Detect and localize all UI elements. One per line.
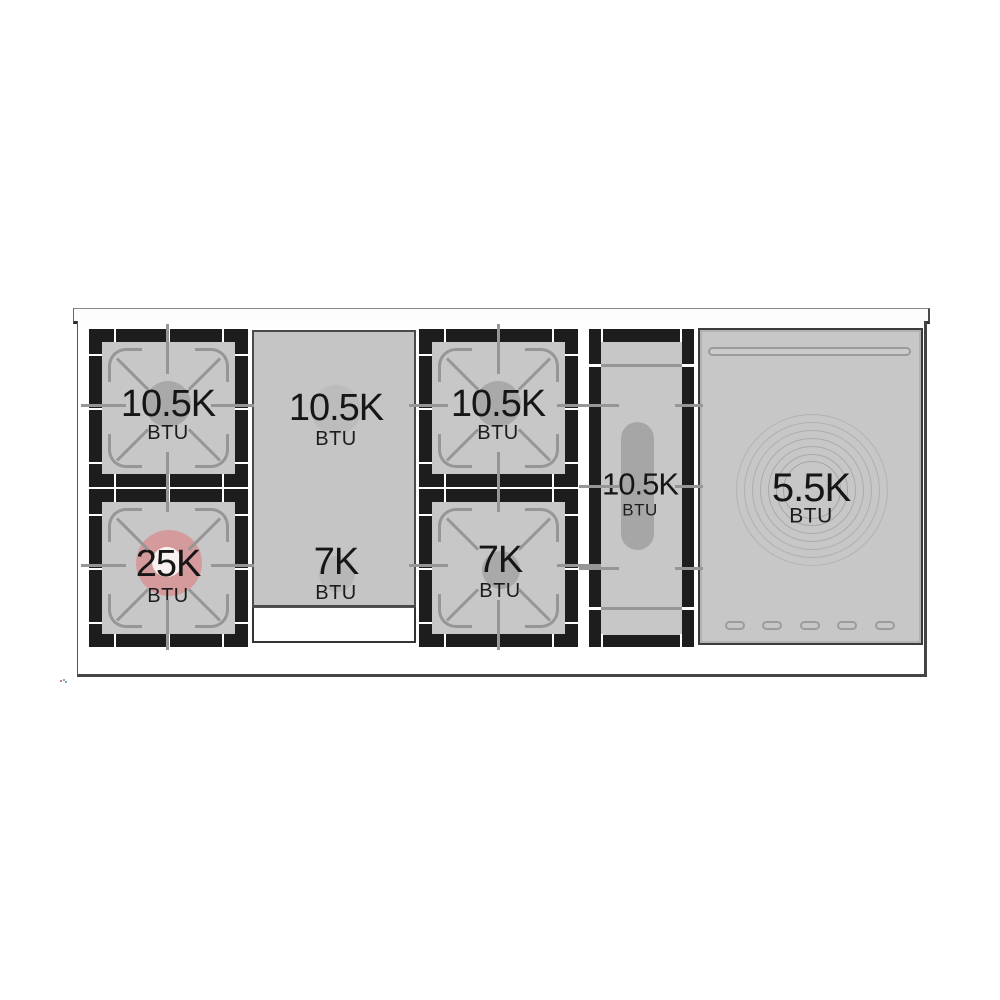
grate-gap xyxy=(419,622,432,624)
grate-gap xyxy=(235,622,248,624)
vent-slot-icon xyxy=(837,621,857,630)
grate-tick xyxy=(497,600,500,650)
burner-value-label: 25K xyxy=(136,545,201,583)
grate-tick xyxy=(409,564,448,567)
grate-tick xyxy=(497,324,500,374)
grate-tick xyxy=(409,404,448,407)
grate-gap xyxy=(565,622,578,624)
grate-gap xyxy=(114,634,116,647)
grate-gap xyxy=(222,634,224,647)
burner-value-label: 10.5K xyxy=(451,385,545,423)
grate-gap xyxy=(89,462,102,464)
burner-unit-label: BTU xyxy=(479,581,521,601)
grate-tick xyxy=(675,404,703,407)
burner-unit-label: BTU xyxy=(315,583,357,603)
grate-gap xyxy=(419,514,432,516)
grate-gap xyxy=(89,514,102,516)
grate-gap xyxy=(235,514,248,516)
grate-gap xyxy=(114,329,116,342)
grate-tick xyxy=(166,324,169,374)
french-top-handle-icon xyxy=(708,347,911,356)
grate-gap xyxy=(444,329,446,342)
grate-gap xyxy=(235,354,248,356)
grate-tick xyxy=(166,452,169,512)
burner-unit-label: BTU xyxy=(622,502,658,519)
grate-gap xyxy=(565,568,578,570)
grate-bar xyxy=(601,364,682,367)
rangetop-body: 10.5K BTU 25K BTU 10.5K BTU 7K BTU xyxy=(77,321,927,677)
grate-gap xyxy=(89,408,102,410)
burner-value-label: 7K xyxy=(314,543,358,581)
grate-gap xyxy=(552,329,554,342)
burner-value-label: 10.5K xyxy=(602,469,678,500)
vent-slot-icon xyxy=(762,621,782,630)
vent-slot-icon xyxy=(725,621,745,630)
grate-gap xyxy=(419,354,432,356)
grate-tick xyxy=(497,452,500,512)
grate-tick xyxy=(675,485,703,488)
grate-tick xyxy=(81,404,126,407)
grate-gap xyxy=(419,408,432,410)
french-top-section: 5.5K BTU xyxy=(698,328,923,645)
grate-gap xyxy=(222,474,224,487)
vent-slot-icon xyxy=(800,621,820,630)
grate-gap xyxy=(565,462,578,464)
grate-gap xyxy=(89,568,102,570)
grate-gap xyxy=(89,354,102,356)
grate-tick xyxy=(579,567,619,570)
grate-gap xyxy=(565,354,578,356)
grate-tick xyxy=(579,485,619,488)
vent-slot-icon xyxy=(875,621,895,630)
burner-unit-label: BTU xyxy=(315,429,357,449)
grate-tick xyxy=(211,564,254,567)
watermark-dot xyxy=(60,679,68,683)
burner-unit-label: BTU xyxy=(477,423,519,443)
grate-gap xyxy=(552,474,554,487)
grate-tick xyxy=(81,564,126,567)
grate-tick xyxy=(675,567,703,570)
grate-gap xyxy=(114,474,116,487)
grate-gap xyxy=(114,489,116,502)
griddle-section: 10.5K BTU 7K BTU xyxy=(252,330,416,607)
grate-gap xyxy=(552,489,554,502)
griddle-grease-tray xyxy=(252,607,416,643)
burner-value-label: 10.5K xyxy=(289,389,383,427)
burner-value-label: 7K xyxy=(478,541,522,579)
grate-gap xyxy=(222,329,224,342)
grate-gap xyxy=(235,408,248,410)
grate-gap xyxy=(444,634,446,647)
oval-burner-section: 10.5K BTU xyxy=(589,329,694,647)
burner-value-label: 5.5K xyxy=(772,468,850,508)
grate-gap xyxy=(419,568,432,570)
grate-tick xyxy=(557,404,619,407)
grate-gap xyxy=(565,514,578,516)
grate-tick xyxy=(166,600,169,650)
grate-gap xyxy=(235,568,248,570)
rangetop-btu-diagram: 10.5K BTU 25K BTU 10.5K BTU 7K BTU xyxy=(0,0,1000,1000)
burner-value-label: 10.5K xyxy=(121,385,215,423)
grate-gap xyxy=(565,408,578,410)
grate-gap xyxy=(444,489,446,502)
grate-gap xyxy=(89,622,102,624)
burner-unit-label: BTU xyxy=(147,423,189,443)
grate-gap xyxy=(552,634,554,647)
grate-gap xyxy=(222,489,224,502)
grate-gap xyxy=(444,474,446,487)
burner-unit-label: BTU xyxy=(789,506,833,527)
grate-bar xyxy=(601,607,682,610)
grate-tick xyxy=(211,404,254,407)
grate-gap xyxy=(419,462,432,464)
grate-gap xyxy=(235,462,248,464)
